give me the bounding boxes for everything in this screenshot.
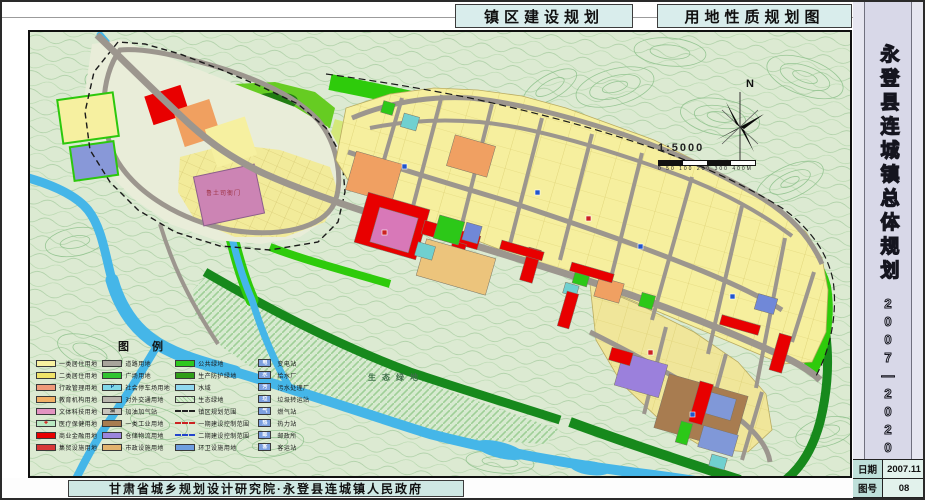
legend-item: 气燃气站 [254, 405, 309, 417]
legend-label: 水域 [198, 383, 211, 392]
footer-strip: 甘肃省城乡规划设计研究院·永登县连城镇人民政府 [2, 478, 853, 498]
sidebar-title-column: 永登县连城镇总体规划 2007—2020 [864, 0, 912, 459]
legend-swatch: 污 [258, 383, 271, 391]
legend-swatch: 油 [102, 408, 122, 415]
legend-swatch: 电 [258, 359, 271, 367]
legend-label: 环卫设施用地 [198, 443, 236, 452]
legend-swatch [102, 444, 122, 451]
legend-swatch [102, 432, 122, 439]
legend-label: 市政设施用地 [125, 443, 163, 452]
legend-swatch [175, 372, 195, 379]
legend-swatch [36, 372, 56, 379]
title-left: 镇区建设规划 [455, 4, 633, 28]
legend-label: 给水厂 [277, 371, 296, 380]
legend-label: 一类工业用地 [125, 419, 163, 428]
credit-box: 甘肃省城乡规划设计研究院·永登县连城镇人民政府 [68, 480, 464, 497]
legend-label: 燃气站 [277, 407, 296, 416]
sheet-number-label: 图号 [853, 479, 883, 497]
legend-label: 文体科技用地 [59, 407, 97, 416]
legend-item: 生产防护绿地 [175, 369, 249, 381]
legend-label: 社会停车场用地 [125, 383, 170, 392]
legend-label: 一类居住用地 [59, 359, 97, 368]
info-table: 日期 2007.11 图号 08 [853, 459, 925, 498]
sidebar: 永登县连城镇总体规划 2007—2020 [853, 0, 925, 500]
legend-label: 生产防护绿地 [198, 371, 236, 380]
legend-item: 商业金融用地 [36, 429, 97, 441]
legend-swatch [36, 384, 56, 391]
legend-label: 公共绿地 [198, 359, 224, 368]
legend-swatch: 垃 [258, 395, 271, 403]
map-panel: 生态绿地 鲁土司衙门 N 1:5000 0 50 100 200 300 400… [28, 30, 852, 478]
legend-swatch [36, 444, 56, 451]
plan-title-vertical: 永登县连城镇总体规划 [875, 44, 902, 284]
legend-item: 电变电站 [254, 357, 309, 369]
scale-segment [707, 161, 731, 165]
legend-item: 垃垃圾转运站 [254, 393, 309, 405]
title-right: 用地性质规划图 [657, 4, 852, 28]
sheet-number-value: 08 [883, 479, 925, 497]
legend-label: 二期建设控制范围 [198, 431, 249, 440]
legend-label: 教育机构用地 [59, 395, 97, 404]
legend-label: 商业金融用地 [59, 431, 97, 440]
legend-swatch: 邮 [258, 431, 271, 439]
legend-swatch [175, 410, 195, 412]
legend-item: 道路用地 [102, 357, 170, 369]
legend-item: 热热力站 [254, 417, 309, 429]
legend-label: 二类居住用地 [59, 371, 97, 380]
legend-item: 行政管理用地 [36, 381, 97, 393]
legend-item: 一类居住用地 [36, 357, 97, 369]
date-label: 日期 [853, 460, 883, 478]
legend-item: 水给水厂 [254, 369, 309, 381]
legend-item: 客客运站 [254, 441, 309, 453]
legend-label: 镇区规划范围 [198, 407, 236, 416]
legend-swatch: 客 [258, 443, 271, 451]
scale-segment [683, 161, 707, 165]
plan-years-vertical: 2007—2020 [881, 296, 896, 458]
legend-swatch [175, 396, 195, 403]
legend-label: 对外交通用地 [125, 395, 163, 404]
date-value: 2007.11 [883, 460, 925, 478]
legend-label: 一期建设控制范围 [198, 419, 249, 428]
legend-item: 水域 [175, 381, 249, 393]
scale-segment [659, 161, 683, 165]
legend-label: 医疗保健用地 [59, 419, 97, 428]
legend-label: 邮政所 [277, 431, 296, 440]
legend-item: 生态绿地 [175, 393, 249, 405]
legend-label: 变电站 [277, 359, 296, 368]
legend-swatch: 热 [258, 419, 271, 427]
legend-swatch [175, 360, 195, 367]
legend-item: 二类居住用地 [36, 369, 97, 381]
legend-swatch [175, 444, 195, 451]
legend-item: 教育机构用地 [36, 393, 97, 405]
legend-item: 邮邮政所 [254, 429, 309, 441]
legend-title: 图 例 [118, 338, 284, 354]
legend-swatch [175, 434, 195, 436]
legend-item: 一期建设控制范围 [175, 417, 249, 429]
legend-label: 集贸设施用地 [59, 443, 97, 452]
legend-item: 仓储物流用地 [102, 429, 170, 441]
legend-item: P社会停车场用地 [102, 381, 170, 393]
legend-item: 文体科技用地 [36, 405, 97, 417]
legend-swatch [175, 422, 195, 424]
legend-item: 油加油加气站 [102, 405, 170, 417]
legend: 图 例 一类居住用地二类居住用地行政管理用地教育机构用地文体科技用地✚医疗保健用… [36, 338, 284, 453]
info-row-sheet-number: 图号 08 [853, 479, 925, 498]
info-row-date: 日期 2007.11 [853, 460, 925, 479]
scale-segment [731, 161, 755, 165]
legend-label: 仓储物流用地 [125, 431, 163, 440]
legend-swatch: 气 [258, 407, 271, 415]
legend-label: 污水处理厂 [277, 383, 309, 392]
legend-swatch [36, 408, 56, 415]
legend-swatch: ✚ [36, 420, 56, 427]
legend-item: 市政设施用地 [102, 441, 170, 453]
legend-label: 行政管理用地 [59, 383, 97, 392]
legend-swatch [102, 360, 122, 367]
legend-swatch [36, 396, 56, 403]
legend-label: 热力站 [277, 419, 296, 428]
legend-label: 生态绿地 [198, 395, 224, 404]
legend-item: 污污水处理厂 [254, 381, 309, 393]
legend-item: 集贸设施用地 [36, 441, 97, 453]
legend-label: 加油加气站 [125, 407, 157, 416]
legend-swatch [175, 384, 195, 391]
legend-item: ✚医疗保健用地 [36, 417, 97, 429]
legend-item: 一类工业用地 [102, 417, 170, 429]
legend-swatch [102, 420, 122, 427]
legend-item: 广场用地 [102, 369, 170, 381]
legend-item: 二期建设控制范围 [175, 429, 249, 441]
legend-swatch: P [102, 384, 122, 391]
legend-swatch [102, 396, 122, 403]
scale-bar [658, 160, 756, 166]
legend-label: 广场用地 [125, 371, 151, 380]
legend-label: 客运站 [277, 443, 296, 452]
legend-swatch: 水 [258, 371, 271, 379]
legend-label: 道路用地 [125, 359, 151, 368]
legend-label: 垃圾转运站 [277, 395, 309, 404]
legend-swatch [36, 432, 56, 439]
legend-columns: 一类居住用地二类居住用地行政管理用地教育机构用地文体科技用地✚医疗保健用地商业金… [36, 357, 284, 453]
legend-item: 对外交通用地 [102, 393, 170, 405]
legend-item: 公共绿地 [175, 357, 249, 369]
legend-item: 镇区规划范围 [175, 405, 249, 417]
legend-swatch [102, 372, 122, 379]
legend-swatch [36, 360, 56, 367]
legend-item: 环卫设施用地 [175, 441, 249, 453]
